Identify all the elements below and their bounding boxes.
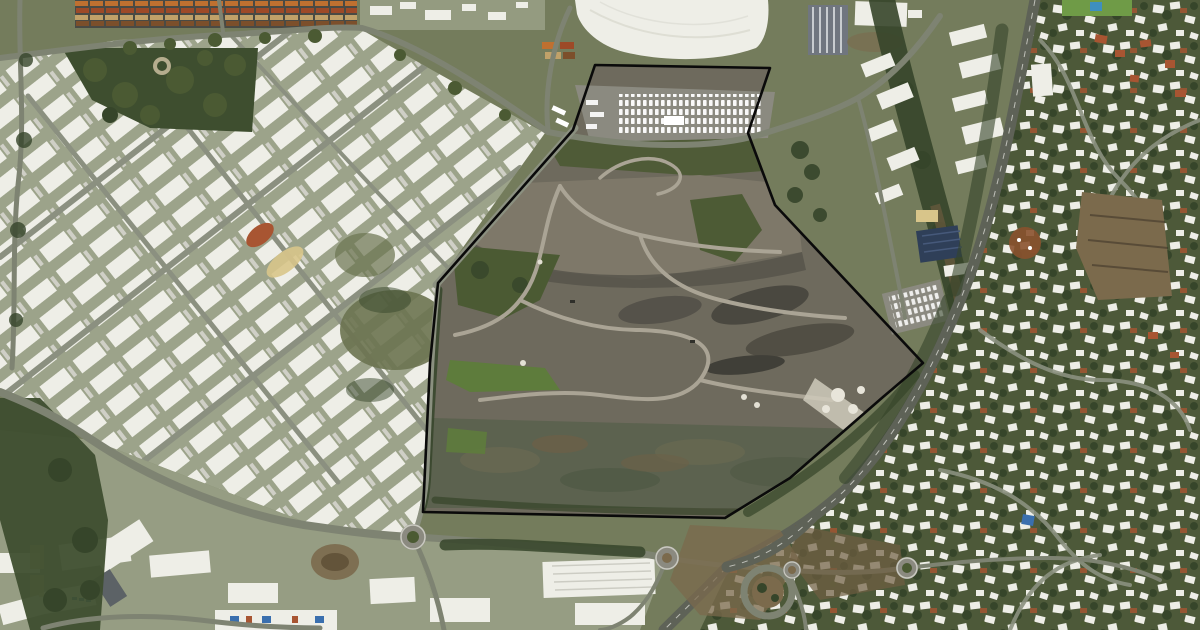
solar-roof-building	[916, 225, 962, 263]
blue-roof-building	[1021, 514, 1035, 526]
ribbed-tower-building	[808, 5, 848, 55]
red-dirt-clearing	[1009, 227, 1041, 259]
tan-building	[916, 210, 938, 222]
sports-field-with-pool	[1062, 0, 1132, 16]
screenshot-root	[0, 0, 1200, 630]
satellite-map	[0, 0, 1200, 630]
